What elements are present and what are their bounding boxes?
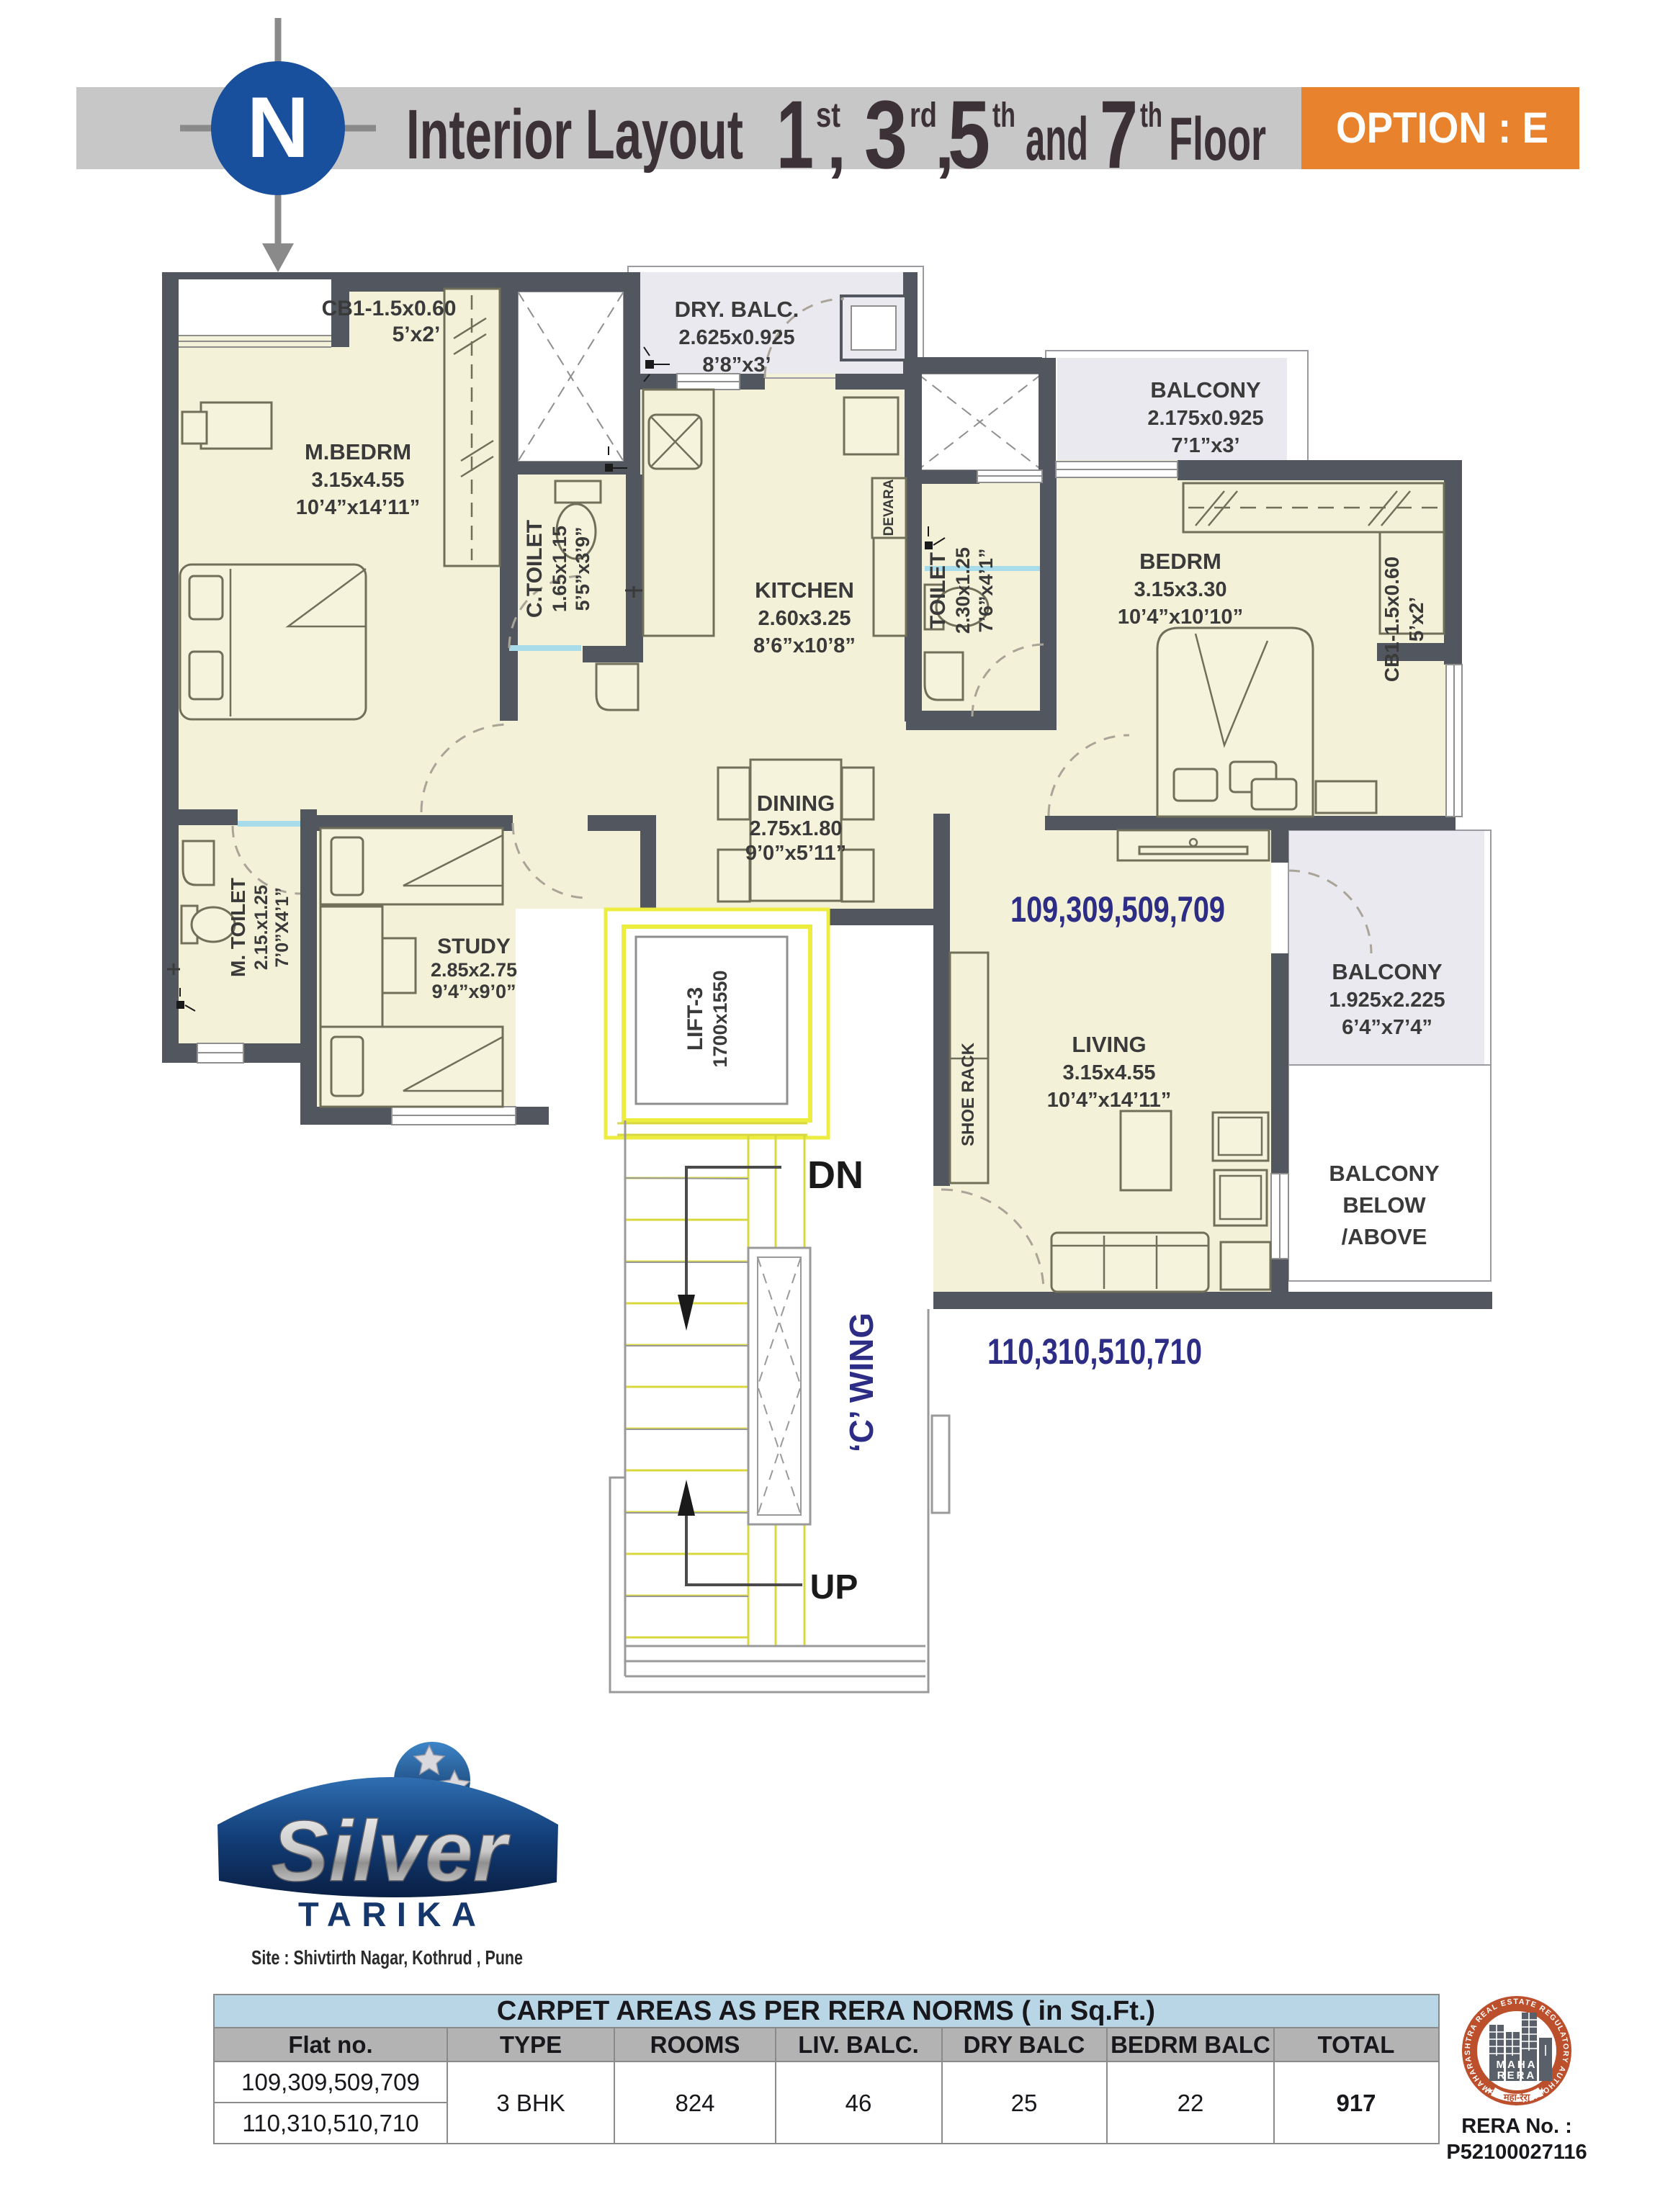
svg-text:★: ★ bbox=[1538, 2085, 1546, 2096]
svg-text:7’6”x4’1”: 7’6”x4’1” bbox=[975, 548, 997, 632]
svg-text:C.TOILET: C.TOILET bbox=[523, 520, 547, 618]
svg-text:22: 22 bbox=[1178, 2090, 1204, 2116]
svg-text:BELOW: BELOW bbox=[1342, 1192, 1426, 1218]
svg-text:DRY. BALC.: DRY. BALC. bbox=[675, 297, 799, 322]
svg-text:3.15x3.30: 3.15x3.30 bbox=[1134, 578, 1226, 601]
svg-text:1.925x2.225: 1.925x2.225 bbox=[1329, 989, 1445, 1012]
svg-text:8’8”x3’: 8’8”x3’ bbox=[702, 354, 771, 377]
svg-text:2.75x1.80: 2.75x1.80 bbox=[749, 817, 842, 840]
svg-text:110,310,510,710: 110,310,510,710 bbox=[242, 2110, 418, 2136]
svg-text:2.85x2.75: 2.85x2.75 bbox=[431, 959, 517, 981]
svg-text:BEDRM: BEDRM bbox=[1139, 549, 1221, 574]
svg-text:/ABOVE: /ABOVE bbox=[1342, 1224, 1427, 1249]
svg-text:5: 5 bbox=[948, 81, 990, 189]
svg-text:SHOE RACK: SHOE RACK bbox=[959, 1042, 978, 1146]
svg-text:824: 824 bbox=[675, 2090, 714, 2116]
svg-text:1700x1550: 1700x1550 bbox=[709, 970, 731, 1067]
svg-text:46: 46 bbox=[846, 2090, 872, 2116]
svg-text:M. TOILET: M. TOILET bbox=[227, 878, 249, 977]
svg-text:महा-रेरा: महा-रेरा bbox=[1503, 2092, 1530, 2103]
svg-text:5’x2’: 5’x2’ bbox=[393, 323, 441, 346]
svg-text:7’1”x3’: 7’1”x3’ bbox=[1171, 434, 1239, 457]
svg-text:‘C’ WING: ‘C’ WING bbox=[843, 1313, 880, 1452]
svg-text:UP: UP bbox=[810, 1568, 858, 1606]
svg-text:10’4”x10’10”: 10’4”x10’10” bbox=[1118, 606, 1243, 629]
svg-text:BALCONY: BALCONY bbox=[1329, 1161, 1440, 1186]
svg-text:2.30x1.25: 2.30x1.25 bbox=[952, 547, 974, 634]
svg-text:5’5”x3’9”: 5’5”x3’9” bbox=[572, 526, 593, 611]
svg-text:3: 3 bbox=[864, 81, 907, 189]
svg-text:CB1-1.5x0.60: CB1-1.5x0.60 bbox=[322, 297, 457, 320]
svg-text:Site : Shivtirth Nagar, Kothru: Site : Shivtirth Nagar, Kothrud , Pune bbox=[251, 1946, 523, 1969]
svg-text:RERA: RERA bbox=[1497, 2069, 1537, 2082]
svg-text:RERA No. :: RERA No. : bbox=[1461, 2115, 1572, 2138]
svg-text:th: th bbox=[1140, 96, 1162, 135]
svg-text:Floor: Floor bbox=[1169, 105, 1266, 173]
svg-text:BEDRM BALC: BEDRM BALC bbox=[1111, 2031, 1270, 2058]
svg-text:P52100027116: P52100027116 bbox=[1446, 2141, 1587, 2164]
svg-text:CB1-1.5x0.60: CB1-1.5x0.60 bbox=[1381, 557, 1403, 682]
svg-text:DEVARA: DEVARA bbox=[882, 479, 897, 536]
svg-text:M.BEDRM: M.BEDRM bbox=[305, 439, 411, 464]
svg-text:Interior Layout: Interior Layout bbox=[406, 95, 743, 174]
svg-text:7’0”X4’1”: 7’0”X4’1” bbox=[272, 887, 292, 967]
svg-text:9’4”x9’0”: 9’4”x9’0” bbox=[431, 981, 516, 1002]
svg-text:Flat no.: Flat no. bbox=[288, 2031, 372, 2058]
svg-text:25: 25 bbox=[1011, 2090, 1038, 2116]
svg-text:3.15x4.55: 3.15x4.55 bbox=[1062, 1061, 1155, 1084]
svg-text:rd: rd bbox=[910, 96, 937, 135]
svg-text:LIV. BALC.: LIV. BALC. bbox=[798, 2031, 918, 2058]
svg-text:10’4”x14’11”: 10’4”x14’11” bbox=[296, 496, 421, 519]
svg-text:and: and bbox=[1026, 105, 1088, 173]
svg-text:2.175x0.925: 2.175x0.925 bbox=[1147, 407, 1263, 430]
svg-text:TYPE: TYPE bbox=[500, 2031, 562, 2058]
svg-text:BALCONY: BALCONY bbox=[1332, 959, 1443, 984]
svg-text:2.625x0.925: 2.625x0.925 bbox=[678, 326, 794, 349]
svg-text:KITCHEN: KITCHEN bbox=[755, 577, 854, 603]
svg-text:★: ★ bbox=[1486, 2085, 1494, 2096]
svg-text:110,310,510,710: 110,310,510,710 bbox=[987, 1331, 1202, 1372]
svg-text:3 BHK: 3 BHK bbox=[496, 2090, 565, 2116]
svg-text:OPTION : E: OPTION : E bbox=[1336, 104, 1548, 152]
svg-text:917: 917 bbox=[1336, 2090, 1376, 2116]
svg-text:LIVING: LIVING bbox=[1072, 1032, 1146, 1057]
svg-text:9’0”x5’11”: 9’0”x5’11” bbox=[745, 842, 846, 865]
svg-text:Silver: Silver bbox=[272, 1803, 511, 1899]
svg-text:DINING: DINING bbox=[757, 791, 835, 816]
svg-text:DN: DN bbox=[807, 1154, 864, 1197]
svg-text:TARIKA: TARIKA bbox=[298, 1895, 476, 1933]
svg-text:8’6”x10’8”: 8’6”x10’8” bbox=[753, 634, 856, 657]
svg-text:7: 7 bbox=[1100, 81, 1138, 189]
svg-text:109,309,509,709: 109,309,509,709 bbox=[241, 2069, 420, 2095]
svg-text:TOILET: TOILET bbox=[926, 552, 950, 629]
svg-text:LIFT-3: LIFT-3 bbox=[683, 987, 707, 1051]
svg-text:CARPET AREAS AS PER RERA NORMS: CARPET AREAS AS PER RERA NORMS ( in Sq.F… bbox=[497, 1996, 1155, 2026]
svg-text:1: 1 bbox=[776, 81, 814, 189]
svg-text:N: N bbox=[247, 79, 310, 176]
svg-text:109,309,509,709: 109,309,509,709 bbox=[1010, 889, 1225, 930]
svg-text:ROOMS: ROOMS bbox=[650, 2031, 740, 2058]
svg-text:6’4”x7’4”: 6’4”x7’4” bbox=[1342, 1016, 1432, 1039]
svg-text:DRY BALC: DRY BALC bbox=[964, 2031, 1085, 2058]
svg-text:STUDY: STUDY bbox=[437, 935, 511, 958]
svg-text:2.15.x1.25: 2.15.x1.25 bbox=[251, 885, 272, 970]
svg-text:1.65x1.15: 1.65x1.15 bbox=[549, 526, 570, 612]
svg-text:,: , bbox=[827, 104, 846, 183]
svg-text:th: th bbox=[992, 96, 1015, 135]
svg-text:5’x2’: 5’x2’ bbox=[1405, 597, 1427, 642]
svg-text:10’4”x14’11”: 10’4”x14’11” bbox=[1047, 1089, 1172, 1112]
svg-text:3.15x4.55: 3.15x4.55 bbox=[311, 469, 404, 492]
svg-text:TOTAL: TOTAL bbox=[1318, 2031, 1395, 2058]
svg-text:BALCONY: BALCONY bbox=[1150, 377, 1261, 403]
svg-text:2.60x3.25: 2.60x3.25 bbox=[758, 607, 851, 630]
